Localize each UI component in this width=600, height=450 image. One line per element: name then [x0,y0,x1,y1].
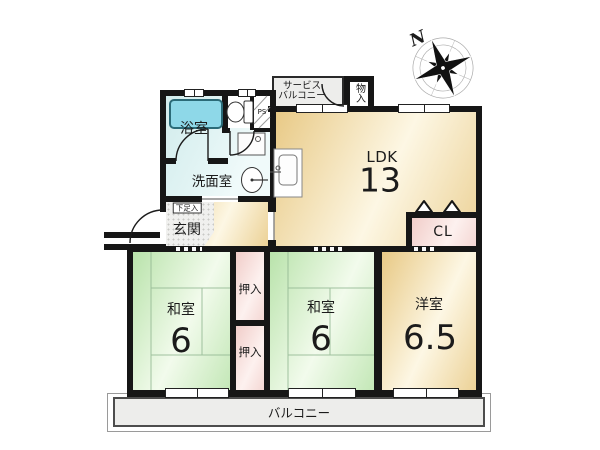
storage-label: 物入 [352,83,367,103]
wall-segment [368,76,374,112]
compass-n-label: N [407,27,429,52]
cl-label: CL [433,224,453,240]
wall-segment [222,128,230,133]
window-washitsu-center [288,388,356,398]
wall-segment [406,212,482,218]
wall-segment [222,96,228,132]
wall-segment [374,252,382,390]
window-washitsu-left [165,388,229,398]
porch-wall [104,244,166,250]
oshiire-upper-label: 押入 [239,281,262,297]
porch-wall [104,232,160,238]
wall-segment [160,90,166,212]
shoe-box: 下足入 [173,203,202,214]
wall-segment [160,196,202,202]
western-room-size: 6.5 [403,318,457,358]
entrance-label: 玄関 [173,219,201,239]
wall-segment [160,158,176,164]
washitsu-left-label: 和室 [167,299,195,319]
bath-label: 浴室 [180,118,208,138]
window-ldk-north [398,104,450,113]
washroom-label: 洗面室 [192,170,233,190]
wall-segment [208,158,228,164]
fusuma-marker [410,247,438,251]
window-bath [184,89,204,97]
wall-segment [160,90,276,96]
fusuma-marker [172,247,202,251]
window-service-balcony-door [296,104,348,113]
wall-segment [268,196,276,212]
service-balcony-label: サービス バルコニー [278,82,325,103]
washitsu-center-label: 和室 [307,297,335,317]
wall-segment [250,96,254,130]
wall-segment [127,246,133,397]
floorplan-canvas: N 浴室 洗面室 PS サービス バルコニー 物入 LDK 13 下足入 玄関 … [0,0,600,450]
oshiire-lower-label: 押入 [239,344,262,360]
wall-segment [476,112,482,397]
wall-segment [406,212,412,252]
wall-segment [230,320,270,326]
western-room-label: 洋室 [415,294,443,314]
washitsu-left-size: 6 [170,321,192,361]
wall-segment [254,128,270,132]
room-toilet [228,96,250,128]
ps-label: PS [258,108,267,116]
service-balcony-line2: バルコニー [278,92,325,102]
window-western-room [393,388,459,398]
ldk-size: 13 [359,161,401,200]
fusuma-marker [310,247,344,251]
balcony-label: バルコニー [268,403,330,422]
window-toilet [238,89,256,97]
washitsu-center-size: 6 [310,319,332,359]
